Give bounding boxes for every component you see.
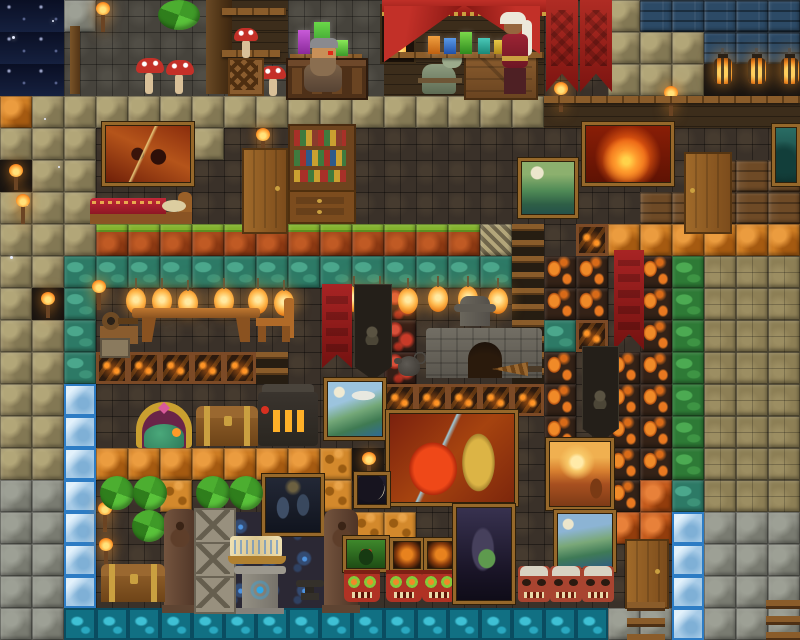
teal-moss-block[interactable] [192, 256, 224, 288]
tan-brick-block[interactable] [736, 448, 768, 480]
rune-wall[interactable] [288, 544, 320, 576]
gray-slab-block[interactable] [32, 544, 64, 576]
grass-dirt-block[interactable] [448, 224, 480, 256]
door-handle [275, 186, 280, 191]
tan-stone-block[interactable] [0, 128, 32, 160]
crescent-moon-painting [354, 472, 390, 508]
stylist-npc[interactable] [496, 12, 536, 96]
tan-stone-block[interactable] [32, 448, 64, 480]
lantern-chain [223, 278, 225, 289]
teal-moss-block[interactable] [128, 256, 160, 288]
ice-brick-block[interactable] [672, 576, 704, 608]
green-moss-block[interactable] [672, 416, 704, 448]
night-sky[interactable] [0, 64, 32, 96]
tan-brick-block[interactable] [704, 480, 736, 512]
teal-moss-block[interactable] [416, 256, 448, 288]
ladder[interactable] [627, 602, 665, 640]
wooden-door[interactable] [242, 148, 288, 234]
lava-plate-block[interactable] [576, 224, 608, 256]
stylist-belt [502, 56, 528, 61]
blue-plank-block[interactable] [704, 0, 736, 32]
stylist-hair [500, 12, 526, 24]
mushroom-cap [234, 28, 258, 41]
gray-slab-block[interactable] [704, 512, 736, 544]
tan-stone-block[interactable] [192, 96, 224, 128]
machine-button [261, 406, 269, 414]
dark-brick-wall[interactable] [416, 128, 448, 160]
teal-moss-block[interactable] [480, 256, 512, 288]
lantern-chain [135, 278, 137, 289]
tan-brick-block[interactable] [768, 384, 800, 416]
dwarf-beard [310, 58, 336, 76]
tan-brick-block[interactable] [768, 480, 800, 512]
lava-moss-block[interactable] [544, 384, 576, 416]
orange-block[interactable] [640, 224, 672, 256]
cage-lantern-part [781, 58, 799, 84]
lava-moss-block[interactable] [640, 448, 672, 480]
tan-brick-block[interactable] [768, 352, 800, 384]
statue-base [322, 605, 360, 613]
grass-dirt-block[interactable] [384, 224, 416, 256]
wall-torch [92, 280, 106, 310]
gray-slab-block[interactable] [768, 512, 800, 544]
lava-plate-block[interactable] [160, 352, 192, 384]
work-table[interactable] [132, 308, 260, 342]
wooden-chest[interactable] [101, 564, 165, 602]
dark-brick-wall[interactable] [416, 160, 448, 192]
lava-plate-block[interactable] [128, 352, 160, 384]
dark-brick-wall[interactable] [544, 128, 576, 160]
green-moss-block[interactable] [672, 256, 704, 288]
dark-brick-wall[interactable] [480, 160, 512, 192]
dark-brick-wall[interactable] [480, 192, 512, 224]
night-sky[interactable] [32, 0, 64, 32]
lava-moss-block[interactable] [576, 288, 608, 320]
torch-flame [256, 128, 270, 141]
lake-mountain-painting [554, 510, 616, 572]
goggle-tiki-mask-part [390, 576, 402, 588]
grass-dirt-block[interactable] [96, 224, 128, 256]
bookshelf[interactable] [288, 124, 356, 192]
machine-slot [297, 410, 304, 432]
lava-plate-block[interactable] [192, 352, 224, 384]
dark-brick-wall[interactable] [352, 160, 384, 192]
dispenser-machine[interactable] [258, 384, 318, 446]
goggle-tiki-mask [344, 570, 380, 602]
tan-stone-block[interactable] [384, 96, 416, 128]
mushroom-cluster [134, 56, 168, 94]
tan-brick-block[interactable] [704, 288, 736, 320]
lava-moss-block[interactable] [640, 288, 672, 320]
ice-brick-block[interactable] [672, 512, 704, 544]
tan-brick-block[interactable] [704, 448, 736, 480]
small-crate [100, 338, 130, 358]
chair[interactable] [256, 298, 294, 342]
ice-brick-block[interactable] [64, 448, 96, 480]
tan-brick-block[interactable] [736, 416, 768, 448]
grass-dirt-block[interactable] [128, 224, 160, 256]
lava-moss-block[interactable] [640, 256, 672, 288]
dark-brick-wall[interactable] [448, 160, 480, 192]
goggle-tiki-mask-part [394, 592, 414, 598]
tan-brick-block[interactable] [736, 384, 768, 416]
ice-brick-block[interactable] [672, 544, 704, 576]
gray-brick-wall[interactable] [96, 64, 128, 96]
blue-plank-block[interactable] [768, 0, 800, 32]
dark-wood-wall[interactable] [384, 64, 416, 96]
wall-torch [16, 194, 30, 224]
glowing-ice-block[interactable] [512, 608, 544, 640]
glowing-ice-block[interactable] [576, 608, 608, 640]
orange-block[interactable] [128, 448, 160, 480]
potion-flask [478, 38, 490, 54]
tan-stone-block[interactable] [64, 128, 96, 160]
tan-brick-block[interactable] [768, 256, 800, 288]
ladder[interactable] [766, 600, 800, 640]
glowing-ice-block[interactable] [416, 608, 448, 640]
green-moss-block[interactable] [672, 352, 704, 384]
teapot-part [394, 358, 402, 364]
gray-brick-wall[interactable] [128, 0, 160, 32]
lava-plate-block[interactable] [224, 352, 256, 384]
wooden-door[interactable] [625, 539, 669, 609]
glowing-ice-block[interactable] [384, 608, 416, 640]
tan-stone-block[interactable] [0, 352, 32, 384]
whitecap-tiki-mask-part [601, 579, 610, 586]
glowing-ice-block[interactable] [544, 608, 576, 640]
teal-moss-block[interactable] [672, 480, 704, 512]
torch-flame [92, 280, 106, 293]
ladder-tile[interactable] [512, 224, 544, 256]
ice-brick-block[interactable] [64, 384, 96, 416]
gray-slab-block[interactable] [0, 608, 32, 640]
teal-moss-block[interactable] [320, 256, 352, 288]
table-top [132, 308, 260, 318]
teal-moss-block[interactable] [64, 320, 96, 352]
mask-teeth [524, 592, 544, 598]
lava-moss-block[interactable] [576, 256, 608, 288]
supply-crate [194, 576, 236, 614]
tan-stone-block[interactable] [32, 416, 64, 448]
tan-stone-block[interactable] [256, 96, 288, 128]
teal-moss-block[interactable] [448, 256, 480, 288]
gray-slab-block[interactable] [0, 480, 32, 512]
furnace-rim [454, 304, 496, 312]
goblin-tool [418, 78, 462, 83]
tan-brick-block[interactable] [736, 480, 768, 512]
book-glyphs [234, 540, 280, 554]
tan-brick-block[interactable] [736, 352, 768, 384]
ice-brick-block[interactable] [64, 576, 96, 608]
tan-stone-block[interactable] [0, 288, 32, 320]
wood-plank-block[interactable] [736, 192, 768, 224]
tan-stone-block[interactable] [0, 224, 32, 256]
goggle-tiki-mask-part [422, 570, 456, 574]
glowing-ice-block[interactable] [96, 608, 128, 640]
lava-moss-block[interactable] [544, 256, 576, 288]
tan-brick-block[interactable] [736, 256, 768, 288]
teal-moss-block[interactable] [288, 256, 320, 288]
dark-brick-wall[interactable] [384, 128, 416, 160]
teal-moss-block[interactable] [384, 256, 416, 288]
lava-moss-block[interactable] [640, 352, 672, 384]
dark-brick-wall[interactable] [352, 128, 384, 160]
green-moss-block[interactable] [672, 320, 704, 352]
dark-brick-wall[interactable] [576, 192, 608, 224]
blue-plank-block[interactable] [672, 0, 704, 32]
tan-stone-block[interactable] [480, 96, 512, 128]
glowing-ice-block[interactable] [288, 608, 320, 640]
tan-stone-block[interactable] [32, 224, 64, 256]
battle-painting [102, 122, 194, 186]
lattice-block [228, 58, 264, 96]
spell-book[interactable] [228, 530, 286, 566]
lava-moss-block[interactable] [544, 352, 576, 384]
grass-dirt-block[interactable] [288, 224, 320, 256]
wooden-chest[interactable] [196, 406, 258, 446]
gray-slab-block[interactable] [0, 544, 32, 576]
grass-dirt-block[interactable] [192, 224, 224, 256]
slope-slab-block[interactable] [480, 224, 512, 256]
orange-block[interactable] [224, 448, 256, 480]
tan-brick-block[interactable] [704, 416, 736, 448]
glowing-ice-block[interactable] [448, 608, 480, 640]
wooden-door[interactable] [684, 152, 732, 234]
lava-moss-block[interactable] [640, 320, 672, 352]
ice-brick-block[interactable] [64, 480, 96, 512]
goggle-tiki-mask-part [386, 570, 422, 574]
tan-brick-block[interactable] [704, 384, 736, 416]
walkway-platform [544, 96, 800, 103]
tan-brick-block[interactable] [768, 448, 800, 480]
tan-brick-block[interactable] [768, 288, 800, 320]
tan-stone-block[interactable] [608, 32, 640, 64]
tan-brick-block[interactable] [736, 288, 768, 320]
tan-stone-block[interactable] [32, 256, 64, 288]
gray-slab-block[interactable] [704, 576, 736, 608]
torch-flame [9, 164, 23, 177]
grass-dirt-block[interactable] [416, 224, 448, 256]
tan-stone-block[interactable] [640, 32, 672, 64]
lantern-chain [161, 278, 163, 289]
tan-stone-block[interactable] [224, 96, 256, 128]
glowing-ice-block[interactable] [480, 608, 512, 640]
lava-moss-block[interactable] [640, 384, 672, 416]
lantern-chain [257, 278, 259, 289]
tan-stone-block[interactable] [0, 448, 32, 480]
game-world[interactable] [0, 0, 800, 640]
gray-slab-block[interactable] [0, 512, 32, 544]
door-handle [655, 569, 660, 574]
goggle-tiki-mask-part [425, 576, 437, 588]
ice-brick-block[interactable] [64, 544, 96, 576]
tan-stone-block[interactable] [0, 384, 32, 416]
torch-flame [96, 2, 110, 15]
pedestal-spiral [248, 578, 272, 602]
dark-brick-wall[interactable] [448, 128, 480, 160]
dark-brick-wall[interactable] [736, 128, 768, 160]
tan-stone-block[interactable] [64, 224, 96, 256]
blue-plank-block[interactable] [640, 0, 672, 32]
goggle-tiki-mask-part [406, 576, 418, 588]
dark-brick-wall[interactable] [96, 416, 128, 448]
tan-stone-block[interactable] [32, 352, 64, 384]
tan-stone-block[interactable] [672, 32, 704, 64]
gray-slab-block[interactable] [704, 608, 736, 640]
cage-lantern [712, 54, 734, 88]
tan-stone-block[interactable] [352, 96, 384, 128]
mask-eye [364, 576, 376, 588]
dark-brick-wall[interactable] [608, 192, 640, 224]
gray-slab-block[interactable] [0, 576, 32, 608]
tan-brick-block[interactable] [768, 416, 800, 448]
dark-brick-wall[interactable] [288, 352, 320, 384]
gray-slab-block[interactable] [768, 544, 800, 576]
ladder-tile[interactable] [256, 352, 288, 384]
dark-brick-wall[interactable] [544, 224, 576, 256]
star [52, 20, 54, 22]
gray-slab-block[interactable] [736, 512, 768, 544]
tan-stone-block[interactable] [0, 256, 32, 288]
whitecap-tiki-mask [582, 566, 614, 602]
tan-stone-block[interactable] [0, 320, 32, 352]
tan-stone-block[interactable] [32, 320, 64, 352]
ladder-tile[interactable] [512, 256, 544, 288]
wood-plank-block[interactable] [736, 160, 768, 192]
lantern-bars [714, 58, 732, 84]
night-sky[interactable] [32, 64, 64, 96]
wood-pole [70, 26, 80, 94]
teal-moss-block[interactable] [64, 352, 96, 384]
amber-pore-block[interactable] [320, 480, 352, 512]
tan-stone-block[interactable] [32, 128, 64, 160]
tan-stone-block[interactable] [608, 0, 640, 32]
teal-moss-block[interactable] [544, 320, 576, 352]
mushroom-stem [145, 73, 153, 94]
glowing-ice-block[interactable] [64, 608, 96, 640]
anvil [296, 578, 324, 600]
gray-slab-block[interactable] [32, 480, 64, 512]
stone-pedestal [234, 566, 286, 614]
chair-leg [258, 326, 266, 342]
gray-slab-block[interactable] [704, 544, 736, 576]
grass-dirt-block[interactable] [160, 224, 192, 256]
chest-band [204, 406, 210, 446]
gray-brick-wall[interactable] [96, 32, 128, 64]
dark-brick-wall[interactable] [96, 384, 128, 416]
wood-plank-block[interactable] [640, 192, 672, 224]
creature-shrine[interactable] [136, 402, 192, 448]
tan-brick-block[interactable] [704, 320, 736, 352]
grass-dirt-block[interactable] [352, 224, 384, 256]
tan-brick-block[interactable] [704, 256, 736, 288]
gray-brick-wall[interactable] [64, 64, 96, 96]
tan-stone-block[interactable] [32, 160, 64, 192]
gray-slab-block[interactable] [32, 512, 64, 544]
glowing-ice-block[interactable] [128, 608, 160, 640]
tan-stone-block[interactable] [192, 128, 224, 160]
night-sky[interactable] [0, 32, 32, 64]
tan-stone-block[interactable] [64, 96, 96, 128]
star [58, 166, 60, 168]
green-moss-block[interactable] [672, 288, 704, 320]
amber-pore-block[interactable] [320, 448, 352, 480]
mountain-moon-painting [518, 158, 578, 218]
dark-brick-wall[interactable] [384, 192, 416, 224]
orange-block[interactable] [160, 448, 192, 480]
dresser[interactable] [288, 190, 356, 224]
green-moss-block[interactable] [672, 384, 704, 416]
dwarf-npc[interactable] [296, 38, 354, 96]
dark-brick-wall[interactable] [512, 512, 544, 544]
lava-moss-block[interactable] [544, 288, 576, 320]
gray-slab-block[interactable] [736, 576, 768, 608]
wood-plank-block[interactable] [768, 192, 800, 224]
ice-brick-block[interactable] [64, 512, 96, 544]
gray-slab-block[interactable] [736, 544, 768, 576]
tan-brick-block[interactable] [768, 320, 800, 352]
tan-stone-block[interactable] [32, 384, 64, 416]
dark-brick-wall[interactable] [384, 160, 416, 192]
tan-stone-block[interactable] [416, 96, 448, 128]
dark-brick-wall[interactable] [192, 160, 224, 192]
golem-battle-painting [386, 410, 518, 506]
tan-stone-block[interactable] [64, 160, 96, 192]
blue-plank-block[interactable] [736, 0, 768, 32]
ice-brick-block[interactable] [64, 416, 96, 448]
grass-dirt-block[interactable] [320, 224, 352, 256]
tan-stone-block[interactable] [32, 192, 64, 224]
green-moss-block[interactable] [672, 448, 704, 480]
tan-stone-block[interactable] [0, 416, 32, 448]
red-bed[interactable] [90, 192, 192, 224]
tan-stone-block[interactable] [608, 64, 640, 96]
orange-block[interactable] [96, 448, 128, 480]
lava-moss-block[interactable] [640, 416, 672, 448]
dark-brick-wall[interactable] [352, 192, 384, 224]
dark-brick-wall[interactable] [192, 192, 224, 224]
gray-slab-block[interactable] [64, 0, 96, 32]
orange-block[interactable] [736, 224, 768, 256]
ember-block[interactable] [640, 480, 672, 512]
tan-stone-block[interactable] [32, 96, 64, 128]
dark-brick-wall[interactable] [448, 192, 480, 224]
star [10, 256, 13, 259]
tan-stone-block[interactable] [448, 96, 480, 128]
orange-block[interactable] [192, 448, 224, 480]
orange-block[interactable] [0, 96, 32, 128]
potion-flask [444, 38, 456, 54]
ice-brick-block[interactable] [672, 608, 704, 640]
gray-brick-wall[interactable] [64, 32, 96, 64]
tan-brick-block[interactable] [704, 352, 736, 384]
tan-stone-block[interactable] [512, 96, 544, 128]
mushroom-cap [136, 58, 164, 73]
gray-slab-block[interactable] [32, 608, 64, 640]
night-sky[interactable] [32, 32, 64, 64]
tan-brick-block[interactable] [736, 320, 768, 352]
night-sky[interactable] [0, 0, 32, 32]
mask-eye [348, 576, 360, 588]
gray-slab-block[interactable] [32, 576, 64, 608]
dark-brick-wall[interactable] [480, 128, 512, 160]
teal-moss-block[interactable] [224, 256, 256, 288]
dark-brick-wall[interactable] [416, 192, 448, 224]
gray-slab-block[interactable] [736, 608, 768, 640]
orange-block[interactable] [768, 224, 800, 256]
cage-lantern [780, 54, 800, 88]
dark-brick-wall[interactable] [512, 128, 544, 160]
